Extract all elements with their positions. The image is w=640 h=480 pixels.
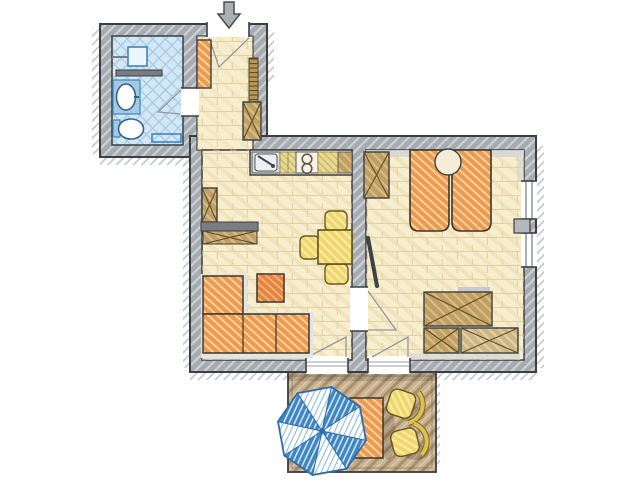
ottoman [257,274,284,302]
hall-storage-cabinet [243,102,261,140]
sideboard-top [201,222,258,231]
bedroom-bottom-ledge [410,353,520,360]
kitchen-counter-right [318,152,338,173]
dining-table [318,230,352,264]
dining-chair-top [325,211,347,231]
washbasin-bowl [117,84,136,110]
shadow-below-bath-block [100,157,190,165]
floor-plan [0,0,640,480]
shadow-below-bedroom [436,372,536,380]
kitchen-end-unit [338,152,352,173]
sofa-cushion-row [203,314,309,353]
toilet-bowl [119,119,144,139]
parasol-pole [319,428,325,434]
shadow-left-main-block [183,150,190,368]
hall-orange-cabinet [197,40,211,88]
shadow-below-living [190,372,288,380]
bedroom-window-1 [521,181,537,219]
shadow-right-main-block [536,146,544,368]
living-terrace-door-opening [306,356,348,374]
bedroom-right-ledge [517,157,524,182]
kitchen-faucet-base [271,164,275,168]
chair-2-seat [389,426,421,458]
bedroom-wardrobe [364,152,389,198]
kitchen-stove [296,152,318,173]
sideboard [201,222,258,244]
bathroom-wall-shelf [116,70,162,76]
sofa-cushion-left [203,276,243,314]
floor-plan-canvas [0,0,640,480]
tall-cabinet [202,188,217,222]
dining-chair-left [300,236,319,259]
shower-head [128,47,147,66]
dining-chair-bottom [325,264,348,284]
round-bedside-table [435,149,461,175]
shadow-right-hall [267,30,274,82]
kitchenette [250,150,352,175]
window-pier [514,219,530,233]
bathroom-door-opening [181,88,199,116]
bedroom-door-opening [350,287,368,331]
bedroom-window-2 [521,233,537,267]
bedroom-terrace-door-opening [368,356,410,374]
shadow-left-bath-block [92,28,100,154]
hall-slatted-shelf [249,58,258,102]
